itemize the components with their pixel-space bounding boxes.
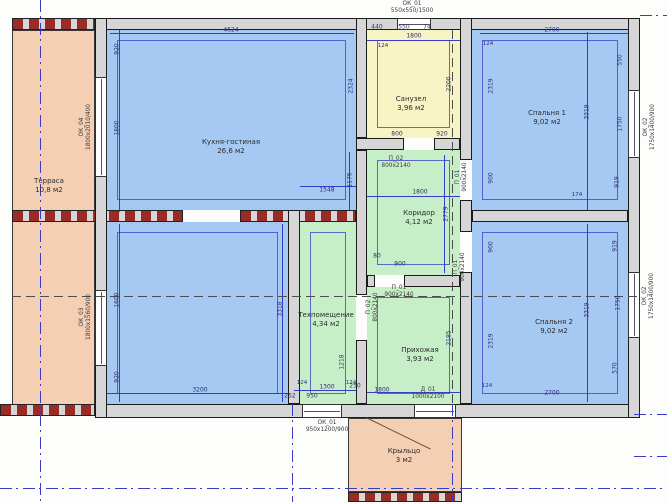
dimension-text: 74 [423, 24, 431, 31]
dimension-text: 919 [612, 240, 619, 251]
room-label-porch: Крыльцо3 м2 [388, 447, 421, 465]
dimension-text: 4624 [223, 27, 238, 34]
dimension-text: 2779 [443, 206, 450, 221]
room-area: 4,12 м2 [403, 218, 435, 227]
wall-corridor-hall-a [367, 275, 375, 287]
dimension-text: 1218 [339, 354, 346, 369]
wall-bottom [95, 404, 640, 418]
axis-stub-top-right [640, 15, 667, 16]
dimension-text: 80 [373, 253, 381, 260]
wall-bedrooms-left-c [460, 272, 472, 404]
dimension-text: 1800 [406, 33, 421, 40]
room-label-hallway: Прихожая3,93 м2 [401, 346, 439, 364]
wall-kitchen-tech [288, 210, 300, 404]
hatch-terrace-bottom [0, 404, 95, 416]
dimension-text: 919 [614, 176, 621, 187]
dim-line [587, 32, 588, 210]
dimension-text: 550 [398, 24, 409, 31]
window-ok02-bedroom1 [628, 90, 640, 158]
dimension-text: 2319 [488, 333, 495, 348]
slope-marker: 124 [297, 380, 308, 386]
dimension-text: 1176 [347, 172, 354, 187]
dim-line [367, 196, 460, 197]
tag-door-p02-bathroom: П_02 800х2140 [381, 156, 410, 170]
wall-bath-bottom-a [356, 138, 404, 150]
dimension-text: 3319 [584, 302, 591, 317]
dimension-text: 920 [114, 371, 121, 382]
room-name: Коридор [403, 209, 435, 217]
room-kitchen-living-lower [107, 222, 288, 404]
tag-door-p01-bedroom1: П_01 900х2140 [455, 162, 469, 191]
tag-window-ok01-top: ОК_01 550х550/1500 [391, 1, 433, 15]
axis-vertical-center-low [452, 404, 453, 502]
axis-horizontal-bottom [0, 488, 667, 489]
room-bedroom-2 [472, 222, 628, 404]
slope-marker: 124 [482, 383, 493, 389]
dimension-text: 3200 [192, 387, 207, 394]
room-area: 3 м2 [388, 456, 421, 465]
room-label-kitchen-living: Кухня-гостиная26,6 м2 [202, 138, 260, 156]
window-ok03-left [95, 290, 107, 366]
wall-right [628, 18, 640, 418]
room-label-corridor: Коридор4,12 м2 [403, 209, 435, 227]
room-area: 9,02 м2 [535, 327, 573, 336]
dimension-text: 570 [612, 362, 619, 373]
room-dimension-frame [482, 232, 618, 394]
room-name: Кухня-гостиная [202, 138, 260, 146]
dimension-text: 1800 [114, 120, 121, 135]
dimension-text: 1548 [319, 187, 334, 194]
dimension-text: 920 [114, 43, 121, 54]
dimension-text: 3318 [277, 301, 284, 316]
dimension-text: 1600 [114, 292, 121, 307]
room-dimension-frame [117, 232, 278, 394]
dim-line [367, 40, 460, 41]
axis-vertical-left [40, 0, 41, 502]
dimension-text: 920 [436, 131, 447, 138]
dimension-text: 2319 [488, 78, 495, 93]
wall-hall-left [356, 340, 367, 404]
dimension-text: 3319 [584, 104, 591, 119]
tag-door-d01: Д_01 1000х2100 [412, 387, 445, 401]
window-ok04-left [95, 77, 107, 177]
room-name: Терраса [34, 177, 64, 185]
dimension-text: 2200 [446, 76, 453, 91]
dimension-text: 1800 [412, 189, 427, 196]
hatch-porch-bottom [348, 492, 462, 502]
room-name: Крыльцо [388, 447, 421, 455]
tag-door-p02-tech: П_02 800х2140 [366, 292, 380, 321]
dimension-text: 252 [284, 393, 295, 400]
axis-vertical-porch-left [292, 404, 293, 502]
dimension-text: 1750 [615, 295, 622, 310]
room-name: Спальня 1 [528, 109, 566, 117]
wall-bath-left [356, 18, 367, 138]
room-kitchen-living [107, 30, 356, 210]
wall-corridor-left [356, 150, 367, 295]
room-area: 3,96 м2 [396, 104, 426, 113]
tag-window-ok02-bedroom2: ОК_02 1750х1400/900 [642, 273, 656, 319]
dimension-text: 2324 [348, 78, 355, 93]
dimension-text: 900 [394, 261, 405, 268]
tag-window-ok01-bottom: ОК_01 950х1200/900 [306, 420, 348, 434]
door-d01-entrance [414, 404, 456, 418]
room-label-terrace: Терраса10,8 м2 [34, 177, 64, 195]
dimension-text: 1800 [374, 387, 389, 394]
room-label-bedroom-2: Спальня 29,02 м2 [535, 318, 573, 336]
room-area: 9,02 м2 [528, 118, 566, 127]
dimension-text: 440 [371, 24, 382, 31]
tag-door-p01-bedroom2: П_01 900х2140 [453, 252, 467, 281]
wall-bath-bottom-b [434, 138, 460, 150]
wall-bedrooms-separator [472, 210, 628, 222]
floor-plan: Терраса10,8 м2Кухня-гостиная26,6 м2Сануз… [0, 0, 667, 502]
window-ok02-bedroom2 [628, 272, 640, 338]
dimension-text: 800 [391, 131, 402, 138]
tag-window-ok03: ОК_03 1800х1560/900 [79, 294, 93, 340]
window-ok01-bottom [302, 404, 342, 418]
room-area: 3,93 м2 [401, 355, 439, 364]
slope-marker: 124 [378, 43, 389, 49]
room-name: Прихожая [401, 346, 439, 354]
tag-window-ok04: ОК_04 1800х2010/400 [79, 104, 93, 150]
dimension-text: 900 [488, 241, 495, 252]
tag-window-ok02-bedroom1: ОК_02 1750х1400/900 [643, 104, 657, 150]
room-label-bathroom: Санузел3,96 м2 [396, 95, 426, 113]
room-dimension-frame [377, 40, 450, 128]
dimension-text: 2700 [544, 27, 559, 34]
room-label-tech-room: Техпомещение4,34 м2 [298, 311, 354, 329]
dimension-text: 900 [488, 172, 495, 183]
room-area: 10,8 м2 [34, 186, 64, 195]
axis-horizontal-center-dark [12, 296, 640, 297]
dimension-text: 2700 [544, 390, 559, 397]
slope-marker: 124 [346, 380, 357, 386]
dimension-text: 2185 [446, 330, 453, 345]
wall-bedrooms-left-a [460, 18, 472, 160]
dimension-text: 1750 [617, 116, 624, 131]
dimension-text: 550 [617, 54, 624, 65]
room-dimension-frame [117, 40, 346, 200]
room-area: 26,6 м2 [202, 147, 260, 156]
room-name: Техпомещение [298, 311, 354, 319]
slope-marker: 174 [572, 192, 583, 198]
wall-bedrooms-left-b [460, 200, 472, 232]
room-area: 4,34 м2 [298, 320, 354, 329]
room-label-bedroom-1: Спальня 19,02 м2 [528, 109, 566, 127]
room-name: Санузел [396, 95, 426, 103]
axis-stub-right-1 [634, 414, 667, 415]
dimension-text: 950 [306, 393, 317, 400]
hatch-terrace-top [12, 18, 95, 30]
axis-stub-right-2 [634, 456, 667, 457]
dimension-text: 1300 [319, 384, 334, 391]
tag-door-p01-hallway: П_01 900х2140 [384, 285, 413, 299]
room-name: Спальня 2 [535, 318, 573, 326]
slope-marker: 124 [483, 41, 494, 47]
